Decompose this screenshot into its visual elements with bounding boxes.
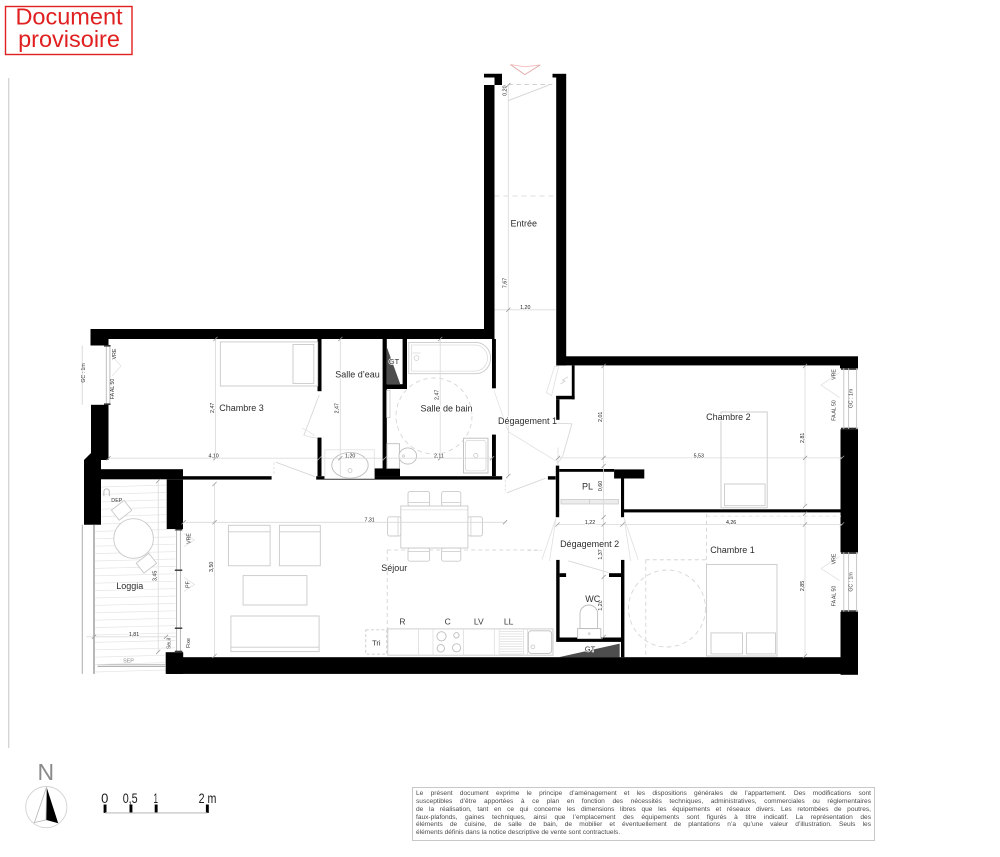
svg-text:5,53: 5,53 — [694, 453, 704, 459]
svg-text:LL: LL — [504, 616, 514, 626]
svg-text:2,47: 2,47 — [210, 403, 216, 413]
svg-text:C: C — [445, 617, 451, 627]
svg-text:VRE: VRE — [112, 348, 118, 359]
svg-text:0: 0 — [101, 791, 108, 806]
svg-text:VRE: VRE — [831, 553, 837, 564]
svg-text:1,81: 1,81 — [129, 632, 139, 638]
svg-text:Salle de bain: Salle de bain — [420, 404, 472, 414]
svg-text:FA AL 50: FA AL 50 — [110, 379, 116, 400]
svg-text:2,11: 2,11 — [434, 454, 444, 460]
svg-text:LV: LV — [474, 616, 484, 626]
svg-text:Chambre 1: Chambre 1 — [710, 545, 755, 555]
svg-text:1,22: 1,22 — [585, 520, 595, 526]
svg-text:3,50: 3,50 — [209, 562, 215, 572]
svg-text:2,47: 2,47 — [335, 403, 341, 413]
svg-text:0,20: 0,20 — [502, 85, 508, 95]
svg-text:provisoire: provisoire — [18, 26, 120, 52]
svg-text:WC: WC — [585, 594, 600, 604]
svg-text:Chambre 2: Chambre 2 — [706, 412, 751, 422]
svg-text:GT: GT — [585, 644, 596, 653]
svg-text:Dégagement 1: Dégagement 1 — [498, 416, 557, 426]
svg-text:Dégagement 2: Dégagement 2 — [560, 539, 619, 549]
svg-text:1,20: 1,20 — [345, 454, 355, 460]
svg-text:3,45: 3,45 — [153, 571, 159, 581]
svg-text:VRE: VRE — [187, 533, 193, 544]
svg-text:FA AL 50: FA AL 50 — [831, 586, 837, 607]
svg-text:PF: PF — [185, 581, 191, 588]
svg-text:1: 1 — [154, 791, 159, 806]
svg-text:Seuil: Seuil — [166, 638, 172, 650]
svg-text:2,85: 2,85 — [800, 581, 806, 591]
svg-text:7,67: 7,67 — [503, 278, 509, 288]
svg-text:Entrée: Entrée — [511, 219, 538, 229]
svg-text:Chambre 3: Chambre 3 — [219, 403, 264, 413]
svg-text:GC : 1m: GC : 1m — [849, 572, 855, 591]
svg-text:GC : 1m: GC : 1m — [849, 389, 855, 408]
svg-text:Séjour: Séjour — [381, 563, 407, 573]
svg-text:VRE: VRE — [831, 369, 837, 380]
svg-text:2 m: 2 m — [199, 791, 217, 806]
svg-text:0,60: 0,60 — [598, 481, 604, 491]
svg-text:1,20: 1,20 — [520, 305, 530, 311]
svg-text:7,31: 7,31 — [364, 518, 374, 524]
svg-text:Loggia: Loggia — [116, 581, 143, 591]
svg-text:4,26: 4,26 — [726, 520, 736, 526]
svg-text:N: N — [37, 759, 54, 785]
svg-text:PL: PL — [582, 482, 593, 492]
svg-text:Fixe: Fixe — [186, 638, 192, 648]
svg-text:GC : 1m: GC : 1m — [81, 363, 87, 382]
svg-text:2,47: 2,47 — [435, 390, 441, 400]
svg-text:2,01: 2,01 — [598, 412, 604, 422]
svg-text:2,81: 2,81 — [800, 433, 806, 443]
svg-text:Salle d’eau: Salle d’eau — [335, 369, 380, 379]
svg-text:GT: GT — [389, 357, 400, 366]
svg-text:FA AL 50: FA AL 50 — [831, 400, 837, 421]
svg-text:0,5: 0,5 — [123, 791, 138, 806]
svg-text:R: R — [399, 617, 405, 627]
svg-text:Tri: Tri — [372, 638, 381, 647]
svg-text:1,37: 1,37 — [598, 549, 604, 559]
svg-text:4,10: 4,10 — [208, 454, 218, 460]
